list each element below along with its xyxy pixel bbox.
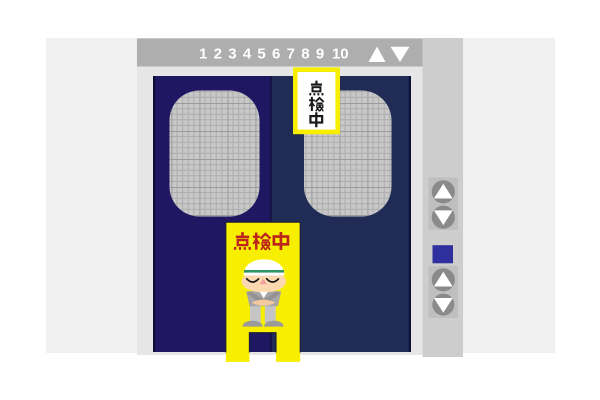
svg-text:1: 1 xyxy=(199,46,207,63)
svg-text:8: 8 xyxy=(301,46,309,63)
svg-text:9: 9 xyxy=(316,46,324,63)
svg-text:7: 7 xyxy=(287,46,295,63)
svg-text:2: 2 xyxy=(214,46,222,63)
svg-text:4: 4 xyxy=(243,46,252,63)
svg-text:6: 6 xyxy=(272,46,280,63)
svg-text:5: 5 xyxy=(257,46,265,63)
svg-text:3: 3 xyxy=(228,46,236,63)
svg-text:10: 10 xyxy=(332,46,349,63)
